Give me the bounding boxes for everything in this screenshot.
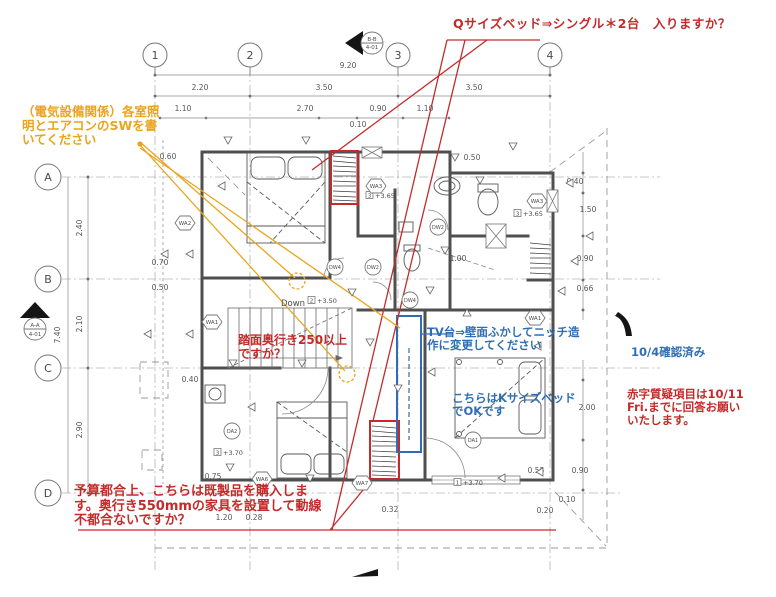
switch-symbol-triangle — [144, 330, 151, 338]
level-marker-number: 3 — [368, 194, 372, 200]
dim-label: 0.10 — [559, 495, 576, 504]
blue-highlight-box — [397, 316, 421, 452]
grid-column-label: 3 — [395, 49, 402, 62]
switch-symbol-triangle — [476, 177, 484, 184]
dim-label: 0.90 — [577, 254, 594, 263]
level-marker-number: 3 — [516, 212, 520, 218]
switch-symbol-triangle — [394, 385, 402, 392]
section-mark-label: 4-01 — [366, 45, 378, 51]
switch-symbol-triangle — [186, 250, 193, 258]
grid-column-label: 2 — [247, 49, 254, 62]
annotation-electrical: （電気設備関係）各室照明とエアコンのSWを書いてください — [22, 105, 160, 147]
dim-label: 2.70 — [297, 104, 314, 113]
dim-label: 2.20 — [192, 83, 209, 92]
furniture — [205, 153, 545, 478]
annotation-line: 不都合ないですか？ — [74, 514, 322, 529]
level-marker-value: +3.50 — [317, 297, 337, 305]
wall-tag-label: WA1 — [206, 320, 218, 326]
wall-tag-label: WA2 — [179, 221, 191, 227]
dim-label: 0.60 — [160, 152, 177, 161]
switch-symbol-triangle — [366, 339, 374, 346]
annotation-budget: 予算都合上、こちらは既製品を購入します。奥行き550mmの家具を設置して動線不都… — [74, 485, 322, 529]
level-marker-number: 1 — [456, 481, 460, 487]
switch-symbol-triangle — [226, 464, 234, 471]
annotation-line: Qサイズベッド⇒シングル＊2台 入りますか？ — [453, 17, 731, 31]
switch-symbol-triangle — [218, 182, 225, 190]
switch-symbol-triangle — [248, 403, 255, 411]
door-tag-label: DW2 — [432, 225, 444, 231]
dim-label: 0.10 — [350, 120, 367, 129]
dim-label: 0.90 — [370, 104, 387, 113]
dim-label: 0.75 — [205, 472, 222, 481]
dim-label: 0.32 — [382, 505, 399, 514]
wall-tag-label: WA7 — [356, 481, 369, 487]
level-marker-value: +3.70 — [223, 449, 243, 457]
grid-row-label: B — [44, 273, 52, 286]
annotation-line: でOKです — [452, 405, 576, 418]
floor-plan-canvas: 1234ABCD9.202.203.503.501.102.700.901.10… — [0, 0, 776, 597]
level-marker-value: +3.65 — [523, 210, 543, 218]
dim-label: 9.20 — [340, 61, 357, 70]
dim-label: 2.90 — [75, 421, 84, 438]
dim-label: 0.90 — [572, 466, 589, 475]
dim-label: 0.50 — [152, 283, 169, 292]
grid-row-label: D — [44, 487, 52, 500]
slope-label: 1.00 — [450, 254, 467, 263]
switch-symbol-triangle — [161, 250, 168, 258]
switch-symbol-triangle — [224, 137, 232, 144]
grid-row-label: A — [44, 171, 52, 184]
level-marker-number: 2 — [310, 299, 314, 305]
door-tag-label: DA1 — [468, 438, 478, 444]
annotation-k-bed: こちらはKサイズベッドでOKです — [452, 392, 576, 418]
door-tag-label: DW4 — [404, 298, 416, 304]
wall-tag-label: WA1 — [529, 316, 541, 322]
grid-row-label: C — [44, 362, 52, 375]
annotation-line: 踏面奥行き250以上 — [238, 334, 347, 348]
dim-label: 1.10 — [175, 104, 192, 113]
annotation-tv-niche: TV台⇒壁面ふかしてニッチ造作に変更してください — [427, 326, 580, 352]
dim-label: 3.50 — [316, 83, 333, 92]
dim-label: 2.00 — [579, 403, 596, 412]
grid-column-label: 4 — [547, 49, 554, 62]
dim-label: 0.50 — [464, 153, 481, 162]
grid-column-label: 1 — [152, 49, 159, 62]
annotation-deadline: 赤字質疑項目は10/11Fri.までに回答お願いいたします。 — [627, 388, 744, 427]
switch-symbol-triangle — [428, 368, 435, 376]
wall-tag-label: WA3 — [370, 184, 383, 190]
annotation-line: 10/4確認済み — [631, 346, 705, 359]
door-tag-label: DW4 — [329, 265, 341, 271]
annotation-line: 明とエアコンのSWを書 — [22, 119, 160, 133]
switch-symbol-triangle — [509, 143, 517, 150]
dim-label: 0.20 — [537, 506, 554, 515]
dim-label: 7.40 — [53, 326, 62, 343]
level-marker-value: +3.70 — [463, 479, 483, 487]
wall-tag-label: WA6 — [256, 477, 269, 483]
dim-label: 0.40 — [182, 375, 199, 384]
switch-symbol-triangle — [451, 154, 459, 161]
annotation-line: （電気設備関係）各室照 — [22, 105, 160, 119]
closet-hatch — [333, 156, 551, 476]
switch-symbol-triangle — [302, 137, 310, 144]
section-mark-label: B-B — [367, 37, 377, 43]
annotation-line: 予算都合上、こちらは既製品を購入しま — [74, 485, 322, 500]
dim-label: 1.10 — [417, 104, 434, 113]
annotation-line: 作に変更してください — [427, 339, 580, 352]
wall-tag-label: WA3 — [531, 199, 544, 205]
walls — [202, 152, 553, 480]
switch-symbol-triangle — [586, 232, 593, 240]
section-mark-label: 4-01 — [29, 332, 41, 338]
annotation-line: ですか？ — [238, 348, 347, 362]
switch-symbol-triangle — [186, 330, 193, 338]
level-marker-number: 3 — [216, 451, 220, 457]
dim-label: 0.70 — [152, 258, 169, 267]
annotation-line: いてください — [22, 133, 160, 147]
switch-symbol-triangle — [571, 257, 578, 265]
switch-symbol-triangle — [426, 287, 434, 294]
dim-label: 1.50 — [580, 205, 597, 214]
dim-label: 3.50 — [466, 83, 483, 92]
switch-symbol-triangle — [229, 360, 237, 367]
annotation-confirmed: 10/4確認済み — [631, 346, 705, 359]
dim-label: 2.10 — [75, 315, 84, 332]
annotation-q-bed: Qサイズベッド⇒シングル＊2台 入りますか？ — [453, 17, 731, 31]
dim-label: 2.40 — [75, 219, 84, 236]
switch-symbol-triangle — [558, 287, 565, 295]
door-tag-label: DW2 — [367, 265, 379, 271]
annotation-line: いたします。 — [627, 414, 744, 427]
switch-symbol-triangle — [441, 247, 449, 254]
stair-down-label: Down — [281, 299, 305, 309]
section-mark-label: A-A — [30, 323, 40, 329]
annotation-stair-tread: 踏面奥行き250以上ですか？ — [238, 334, 347, 361]
door-tag-label: DA2 — [227, 429, 237, 435]
dim-label: 0.66 — [577, 284, 594, 293]
